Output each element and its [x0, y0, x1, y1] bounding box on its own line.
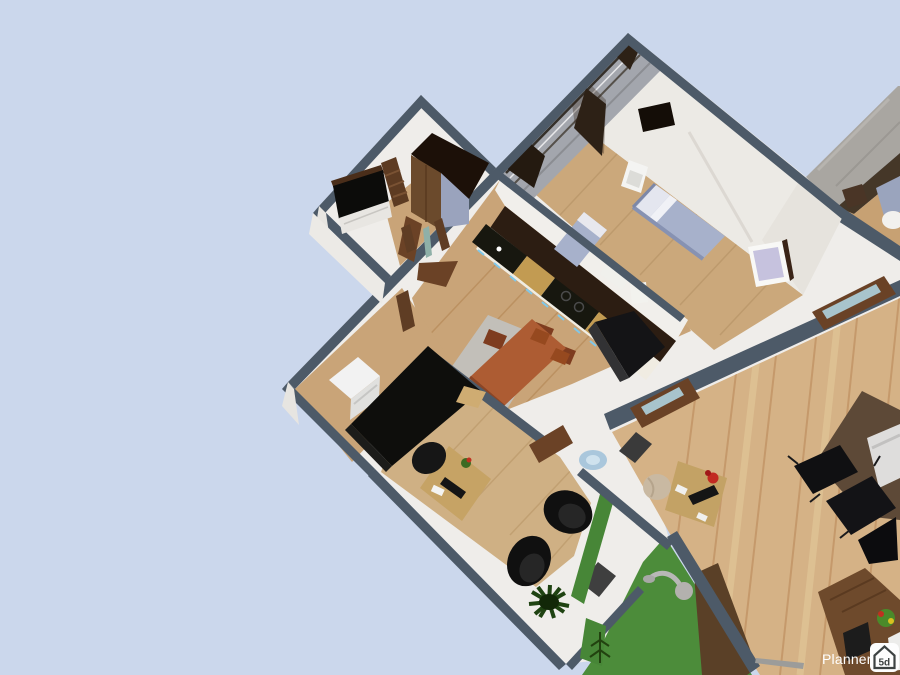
svg-text:5d: 5d — [879, 658, 891, 669]
svg-text:Planner: Planner — [822, 651, 872, 667]
